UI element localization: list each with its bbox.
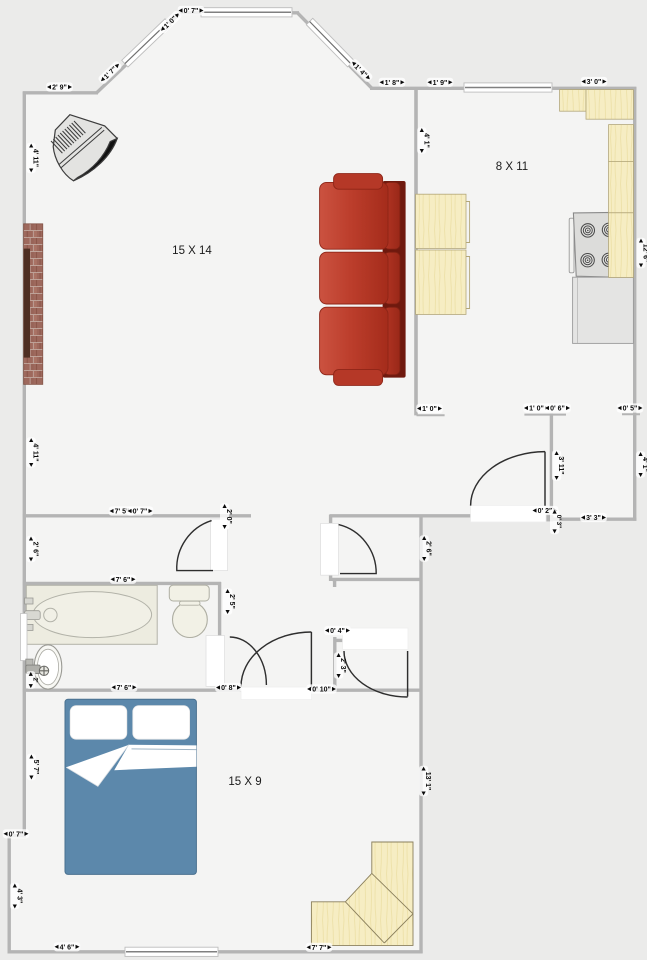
svg-text:0' 4": 0' 4" (330, 628, 345, 635)
svg-text:2' 6": 2' 6" (32, 542, 39, 557)
svg-text:12' 6": 12' 6" (642, 244, 647, 263)
svg-text:2' 6": 2' 6" (425, 541, 432, 556)
svg-text:4' 11": 4' 11" (32, 149, 39, 167)
svg-text:0' 8": 0' 8" (221, 685, 236, 692)
svg-text:1' 8": 1' 8" (385, 80, 400, 87)
svg-text:1' 0": 1' 0" (529, 406, 544, 413)
svg-text:2' 0": 2' 0" (225, 509, 232, 524)
svg-text:2' 5": 2' 5" (228, 594, 235, 609)
svg-text:7' 7": 7' 7" (312, 945, 327, 952)
svg-text:7' 6": 7' 6" (117, 685, 132, 692)
svg-text:2' 9": 2' 9" (52, 85, 67, 92)
svg-text:15 X 9: 15 X 9 (228, 776, 261, 788)
svg-text:0' 10": 0' 10" (312, 687, 331, 694)
svg-text:0' 7": 0' 7" (9, 831, 24, 838)
svg-text:4' 1": 4' 1" (641, 457, 647, 472)
svg-text:7' 6": 7' 6" (116, 577, 131, 584)
svg-text:3' 11": 3' 11" (557, 456, 564, 474)
svg-text:4' 3": 4' 3" (15, 889, 22, 904)
svg-text:0' 5": 0' 5" (623, 406, 638, 413)
svg-text:3' 0": 3' 0" (587, 79, 602, 86)
svg-text:4' 1": 4' 1" (422, 133, 429, 148)
svg-text:0' 7": 0' 7" (133, 509, 148, 516)
svg-text:0' 6": 0' 6" (550, 406, 565, 413)
svg-text:4' 11": 4' 11" (32, 443, 39, 461)
svg-text:0' 3": 0' 3" (555, 515, 562, 528)
svg-text:1' 9": 1' 9" (433, 80, 448, 87)
svg-text:0' 7": 0' 7" (184, 8, 199, 15)
svg-text:15 X 14: 15 X 14 (172, 245, 212, 257)
svg-text:1' 0": 1' 0" (422, 406, 437, 413)
svg-text:13' 1": 13' 1" (424, 772, 431, 791)
svg-text:2': 2' (31, 677, 38, 683)
svg-text:8 X 11: 8 X 11 (496, 161, 528, 173)
svg-text:2' 3": 2' 3" (339, 658, 346, 673)
svg-text:5' 7": 5' 7" (32, 760, 39, 775)
svg-text:3' 3": 3' 3" (586, 515, 601, 522)
svg-text:4' 6": 4' 6" (60, 944, 75, 951)
